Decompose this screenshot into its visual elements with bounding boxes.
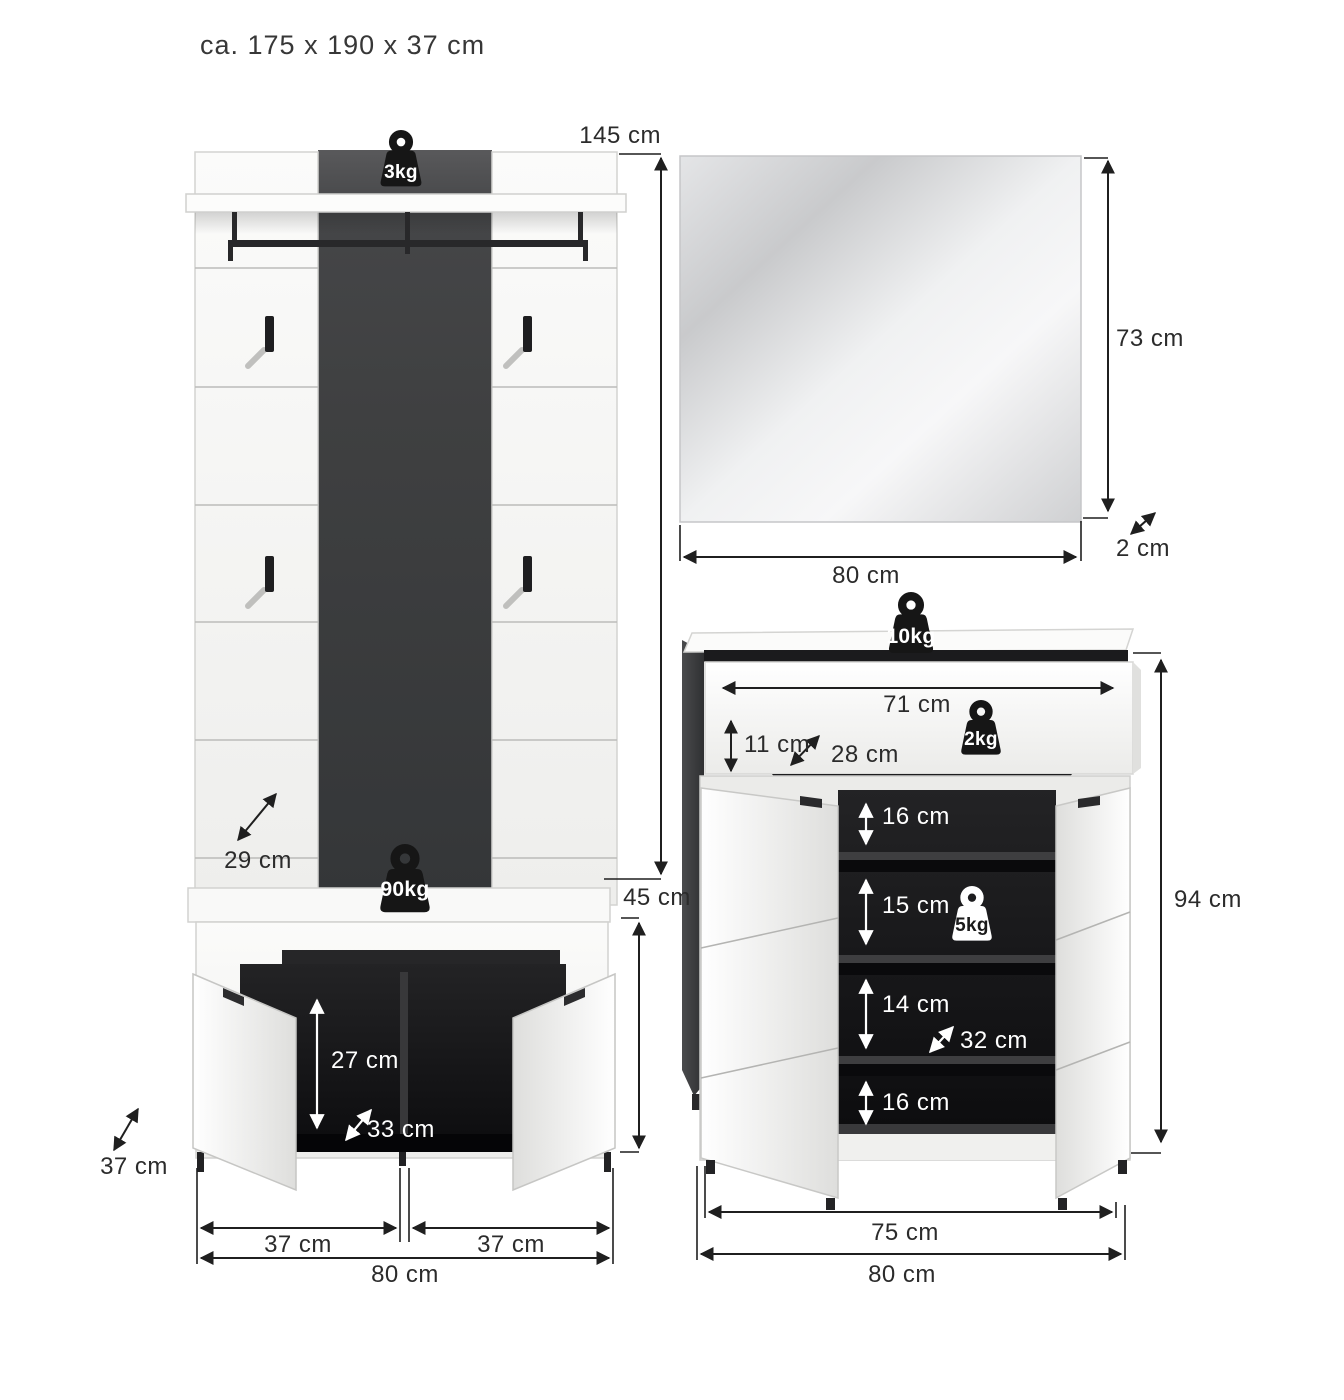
weight-90kg-label: 90kg bbox=[373, 879, 437, 901]
dim-line-2cm bbox=[1131, 513, 1155, 534]
wardrobe-top-shelf bbox=[186, 194, 626, 212]
bench-height-label: 45 cm bbox=[607, 885, 707, 911]
wardrobe-accent-stripe bbox=[318, 150, 492, 905]
compartment-4-label: 16 cm bbox=[882, 1090, 950, 1116]
cabinet-door-left bbox=[701, 788, 838, 1198]
cabinet-height-label: 94 cm bbox=[1174, 887, 1242, 913]
diagram-canvas bbox=[0, 0, 1344, 1400]
compartment-2-label: 15 cm bbox=[882, 893, 950, 919]
furniture-dimension-diagram: ca. 175 x 190 x 37 cm 145 cm 29 cm 45 cm… bbox=[0, 0, 1344, 1400]
weight-5kg-label: 5kg bbox=[947, 915, 997, 937]
wardrobe-panel-left bbox=[195, 152, 318, 905]
drawer-width-label: 71 cm bbox=[861, 692, 973, 718]
weight-3kg-label: 3kg bbox=[375, 162, 427, 184]
wardrobe-unit bbox=[186, 150, 626, 1190]
weight-2kg-label: 2kg bbox=[956, 729, 1006, 751]
drawer-height-label: 11 cm bbox=[744, 732, 810, 758]
right-door-width-label: 37 cm bbox=[455, 1232, 567, 1258]
shelf-depth-label: 32 cm bbox=[960, 1028, 1028, 1054]
compartment-3-label: 14 cm bbox=[882, 992, 950, 1018]
bench-inner-depth-label: 33 cm bbox=[367, 1117, 435, 1143]
cabinet-drawer-side bbox=[1133, 662, 1141, 774]
coat-hook-icon bbox=[523, 556, 532, 592]
coat-hook-icon bbox=[265, 316, 274, 352]
mirror-width-label: 80 cm bbox=[810, 563, 922, 589]
drawer-depth-label: 28 cm bbox=[831, 742, 899, 768]
wardrobe-width-label: 80 cm bbox=[349, 1262, 461, 1288]
mirror bbox=[680, 156, 1081, 522]
cabinet-door-right bbox=[1056, 788, 1130, 1198]
coat-hook-icon bbox=[265, 556, 274, 592]
cabinet-front-width-label: 75 cm bbox=[852, 1220, 958, 1246]
dim-line-37cm-depth bbox=[114, 1109, 138, 1150]
weight-10kg-label: 10kg bbox=[883, 626, 939, 648]
coat-hook-icon bbox=[523, 316, 532, 352]
cabinet-width-label: 80 cm bbox=[849, 1262, 955, 1288]
set-dimensions-title: ca. 175 x 190 x 37 cm bbox=[200, 30, 485, 61]
compartment-1-label: 16 cm bbox=[882, 804, 950, 830]
hook-depth-label: 29 cm bbox=[203, 848, 313, 874]
left-door-width-label: 37 cm bbox=[242, 1232, 354, 1258]
mirror-height-label: 73 cm bbox=[1116, 326, 1184, 352]
wardrobe-depth-label: 37 cm bbox=[78, 1154, 190, 1180]
wardrobe-panel-right bbox=[492, 152, 617, 905]
bench-inner-height-label: 27 cm bbox=[331, 1048, 399, 1074]
mirror-thickness-label: 2 cm bbox=[1097, 536, 1189, 562]
panel-height-label: 145 cm bbox=[553, 123, 661, 149]
